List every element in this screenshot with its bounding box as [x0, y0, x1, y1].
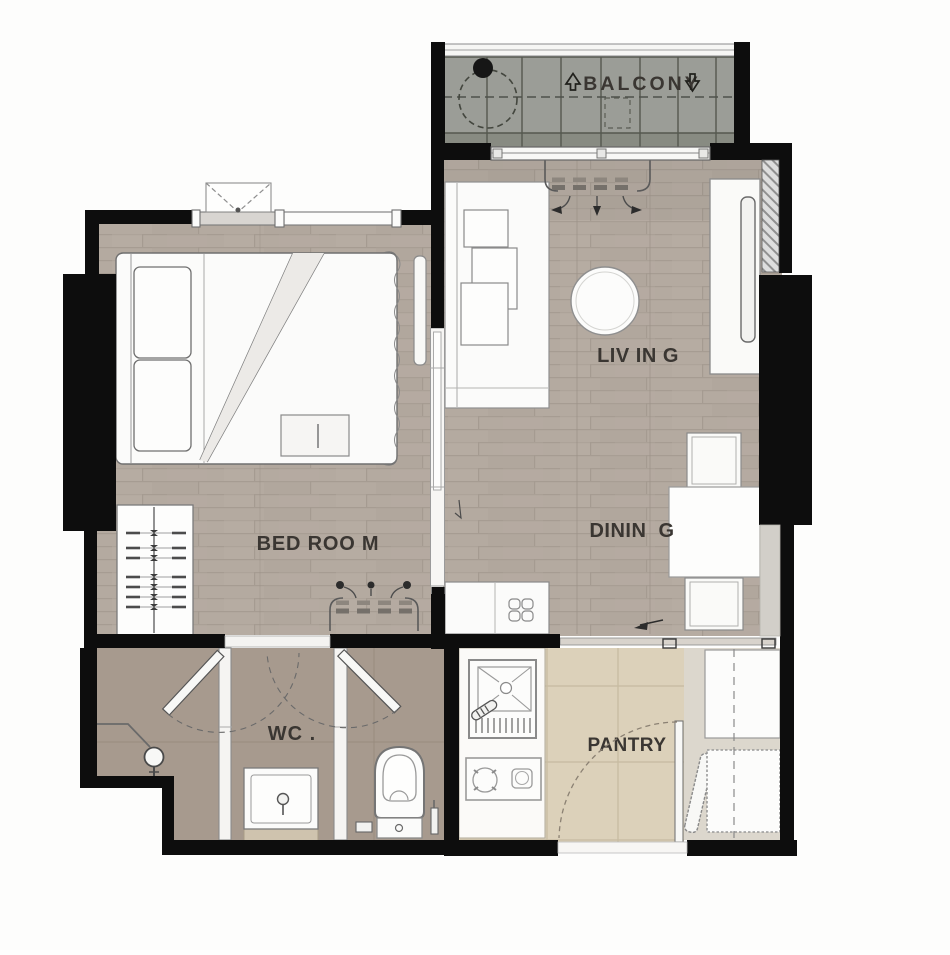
svg-text:BED ROO M: BED ROO M: [257, 533, 380, 555]
svg-text:DININ G: DININ G: [589, 520, 674, 542]
svg-text:BALCONY: BALCONY: [583, 73, 700, 95]
svg-text:WC .: WC .: [268, 723, 316, 745]
svg-text:LIV IN G: LIV IN G: [597, 345, 679, 367]
svg-text:PANTRY: PANTRY: [588, 735, 667, 756]
